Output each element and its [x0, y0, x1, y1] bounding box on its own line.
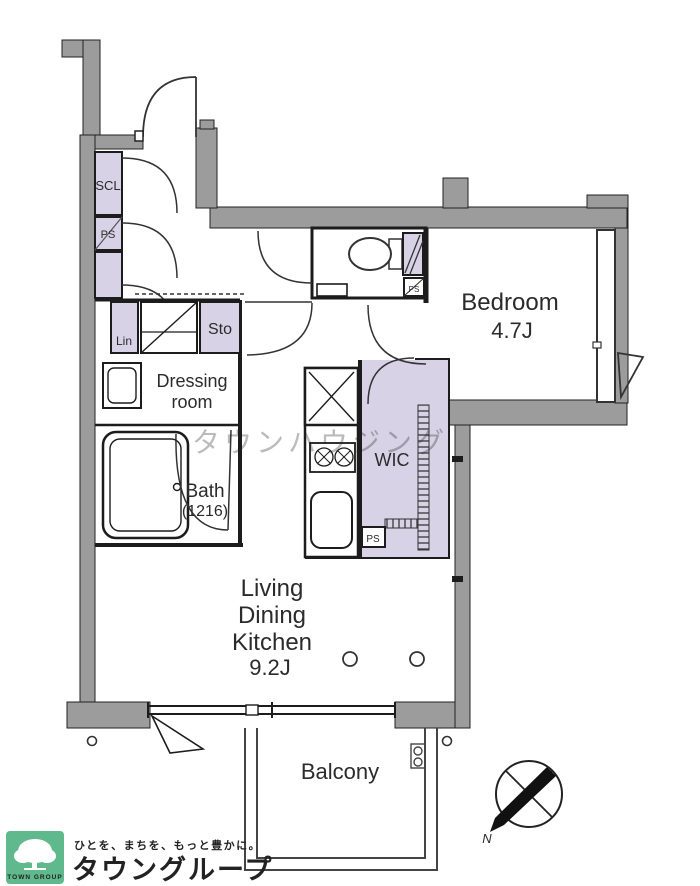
dressing-room-label-2: room [171, 392, 212, 412]
toilet-room [258, 228, 426, 298]
footer-tagline: ひとを、まちを、もっと豊かに。 [74, 838, 261, 852]
washbasin-icon [103, 363, 141, 408]
town-group-logo: TOWN GROUP [6, 831, 64, 884]
toilet-door-pocket [317, 284, 347, 296]
downlight-icons [343, 652, 424, 666]
wic-ps-label: PS [366, 534, 380, 545]
sink-icon [311, 492, 352, 548]
footer-brand: タウングループ [72, 854, 273, 885]
bedroom-label: Bedroom [461, 289, 558, 316]
scl-label: SCL [95, 178, 120, 193]
floorplan-image: SCL PS PS [0, 0, 700, 886]
toilet-icon [349, 238, 402, 270]
lin-label: Lin [116, 334, 132, 348]
entrance-door [135, 77, 196, 141]
kitchen-counter [305, 368, 358, 557]
balcony-drain-icon [411, 744, 425, 768]
ps-label-hall: PS [101, 229, 116, 241]
bath-label: Bath [185, 481, 224, 502]
dressing-door [245, 302, 312, 355]
fridge-space-icon [305, 368, 358, 425]
ground-marker-circles [88, 737, 452, 746]
toilet-door-arc [258, 231, 312, 283]
wic-shelf-hatch-bottom [385, 519, 418, 528]
balcony-label: Balcony [301, 759, 379, 784]
bedroom-door-arc [368, 305, 426, 364]
watermark: タウンハウジング [192, 427, 448, 458]
sliding-window [148, 702, 395, 753]
balcony [245, 728, 437, 870]
bath-size-label: (1216) [182, 503, 228, 520]
scl-closet [95, 152, 122, 298]
ldk-label-2: Dining [238, 602, 306, 629]
washer-pan-icon [141, 302, 197, 353]
ldk-size-label: 9.2J [249, 655, 291, 680]
compass-north-label: N [482, 831, 492, 846]
toilet-ps-label: PS [409, 285, 420, 294]
compass-icon [490, 761, 562, 832]
sto-label: Sto [208, 321, 232, 338]
bedroom-size-label: 4.7J [491, 318, 533, 343]
bathtub-icon [103, 432, 188, 538]
ldk-label-3: Kitchen [232, 629, 312, 656]
ldk-label-1: Living [241, 575, 304, 602]
dressing-room-label-1: Dressing [156, 371, 227, 391]
ldk-casement-window [152, 716, 203, 753]
logo-square-text: TOWN GROUP [7, 874, 62, 881]
